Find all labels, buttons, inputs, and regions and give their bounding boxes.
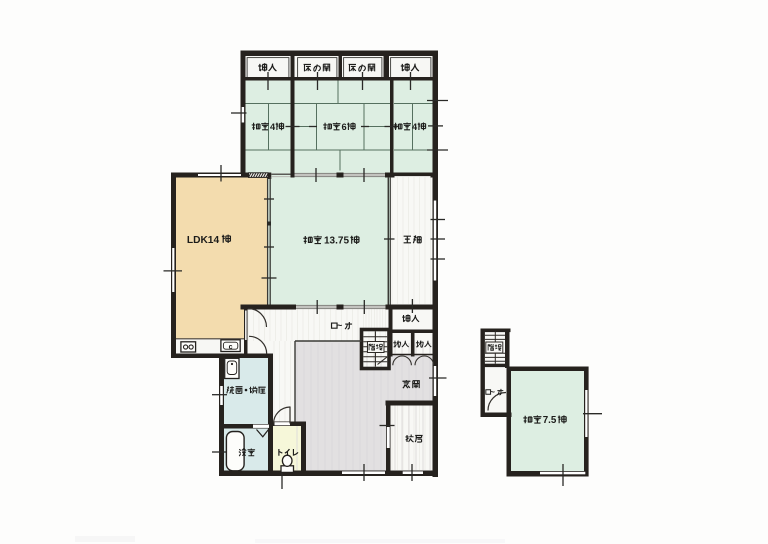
svg-text:c: c — [229, 344, 233, 351]
svg-text:~: ~ — [490, 388, 495, 397]
svg-text:13.75: 13.75 — [324, 235, 349, 246]
svg-text:4: 4 — [412, 122, 418, 132]
svg-text:LDK14: LDK14 — [187, 235, 220, 246]
svg-text:4: 4 — [270, 122, 276, 132]
svg-text:~: ~ — [337, 321, 343, 332]
svg-text:6: 6 — [342, 122, 347, 132]
svg-text:7.5: 7.5 — [543, 415, 557, 426]
